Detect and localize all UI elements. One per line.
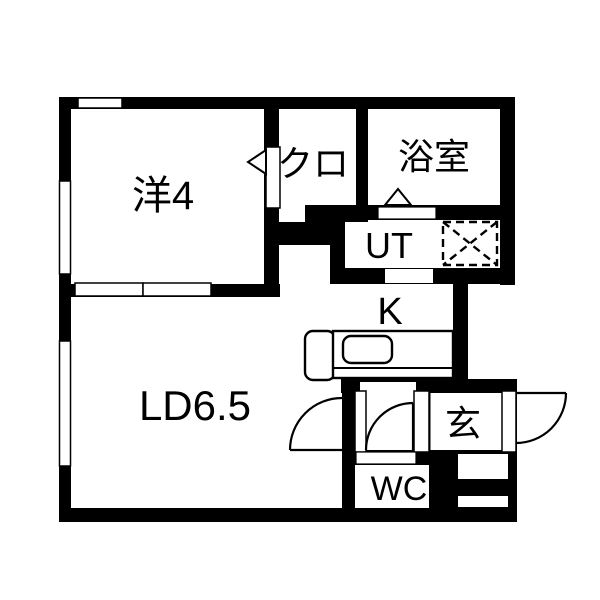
sliding-door-panel-1 — [75, 283, 143, 296]
window-western-left — [60, 181, 71, 274]
entrance-step-upper — [458, 454, 508, 479]
entrance-step-lower — [458, 496, 508, 507]
wall-step-2 — [330, 245, 345, 270]
label-kitchen: K — [377, 291, 402, 333]
label-toilet: WC — [371, 470, 428, 508]
label-closet: クロ — [277, 143, 349, 184]
floorplan-drawing: 洋4 クロ 浴室 UT K LD6.5 玄 WC — [0, 0, 600, 600]
kitchen-counter-end — [305, 331, 335, 380]
wc-door-threshold — [356, 452, 416, 464]
entrance-door-jamb — [502, 391, 516, 452]
wall-top — [59, 97, 515, 109]
label-entrance: 玄 — [445, 403, 481, 444]
label-western-room: 洋4 — [132, 174, 194, 218]
label-living-dining: LD6.5 — [139, 382, 251, 429]
kitchen-counter — [305, 331, 453, 380]
label-bathroom: 浴室 — [398, 136, 470, 177]
wall-right-upper — [500, 97, 515, 285]
wall-kitchen-right — [453, 283, 468, 382]
utility-door-opening — [385, 269, 433, 283]
wall-closet-bathroom — [356, 109, 368, 218]
wall-step-1 — [264, 222, 345, 245]
wall-ld-hall — [342, 379, 355, 508]
hall-door-jamb-right — [414, 391, 429, 452]
hall-doorway-opening — [360, 382, 416, 393]
window-western-top — [78, 98, 122, 108]
bathroom-door-opening — [378, 207, 436, 219]
kitchen-sink-icon — [343, 336, 392, 363]
label-utility: UT — [365, 225, 413, 266]
window-living-left — [60, 341, 71, 466]
sliding-door-panel-2 — [143, 283, 211, 296]
floorplan: 洋4 クロ 浴室 UT K LD6.5 玄 WC — [0, 0, 600, 600]
hall-door-jamb-left — [355, 391, 366, 452]
